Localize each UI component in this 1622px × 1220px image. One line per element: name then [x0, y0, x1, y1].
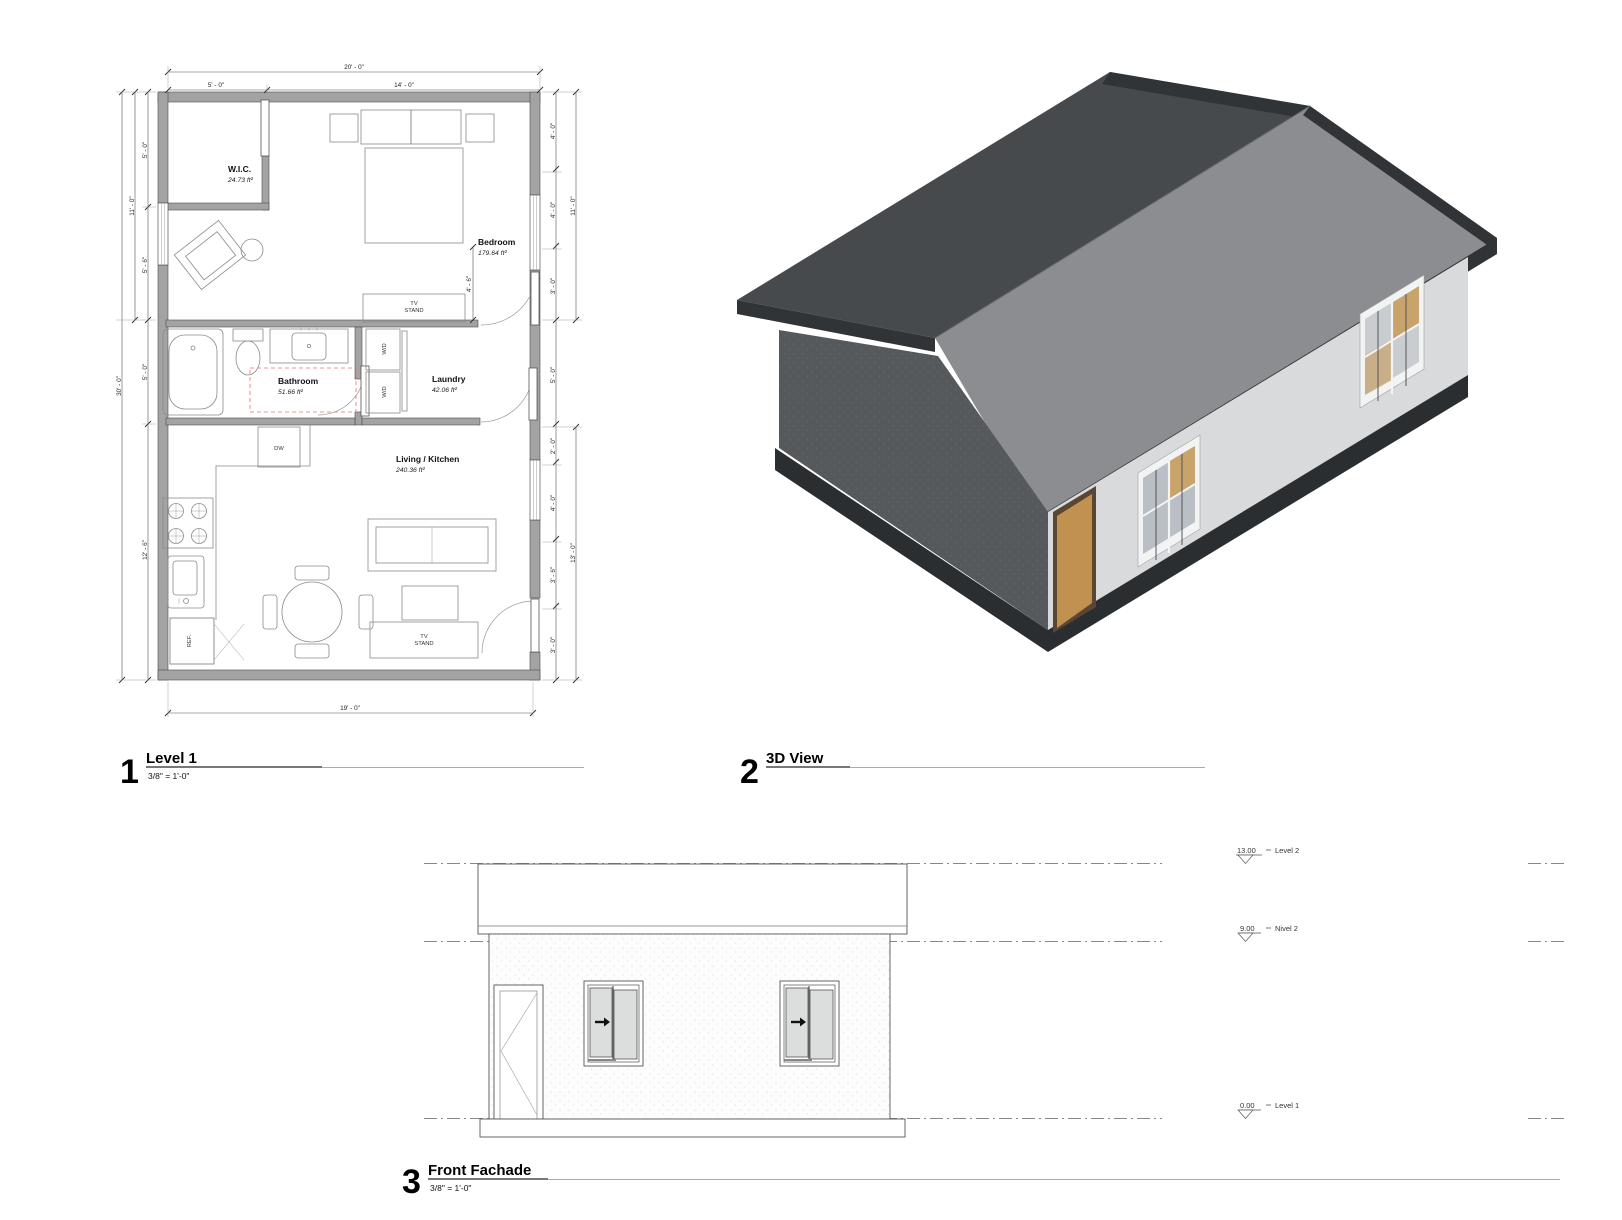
- bedroom-furniture: [174, 110, 494, 322]
- dim-right-seg2: 4' - 0": [550, 202, 557, 218]
- room-area-bathroom: 51.66 ft²: [278, 389, 304, 396]
- bathroom-fixtures: [163, 326, 356, 415]
- entry-door-swing: [482, 601, 534, 653]
- level1-elevation-value: 0.00: [1240, 1101, 1255, 1110]
- facade-roof-band: [478, 864, 907, 934]
- dim-top-left: 5' - 0": [208, 82, 224, 89]
- room-label-bathroom: Bathroom: [278, 376, 319, 386]
- dim-left-seg2: 5' - 6": [142, 257, 149, 273]
- plan-room-labels: W.I.C. 24.73 ft² Bedroom 179.64 ft² Bath…: [227, 164, 516, 647]
- dim-bottom: 19' - 0": [340, 705, 360, 712]
- refrigerator-label: REF.: [187, 634, 193, 647]
- view-title-front-fachade: Front Fachade: [428, 1162, 531, 1179]
- level-marker-level1: 0.00 Level 1: [1238, 1101, 1299, 1119]
- dim-right-seg7: 3' - 6": [550, 567, 557, 583]
- tv-stand-label-1b: STAND: [404, 308, 423, 314]
- dim-left-overall: 30' - 0": [116, 376, 123, 396]
- nivel2-elevation-value: 9.00: [1240, 924, 1255, 933]
- dim-right-seg5: 2' - 0": [550, 438, 557, 454]
- dim-right-seg6: 4' - 0": [550, 495, 557, 511]
- coffee-table: [402, 586, 458, 620]
- level-marker-nivel2: 9.00 Nivel 2: [1238, 924, 1298, 942]
- dim-right-seg1: 4' - 0": [550, 123, 557, 139]
- dim-right-seg4: 5' - 0": [550, 367, 557, 383]
- tv-stand-label-2b: STAND: [414, 641, 433, 647]
- bathroom-vanity: [270, 326, 348, 363]
- wic-door-leaf: [261, 100, 269, 156]
- view-scale-plan: 3/8" = 1'-0": [148, 771, 189, 781]
- room-label-laundry: Laundry: [432, 374, 466, 384]
- level2-name: Level 2: [1275, 846, 1299, 855]
- window-icon: [158, 203, 168, 265]
- dim-top-right: 14' - 0": [394, 82, 414, 89]
- view-title-plan: 1 Level 1 3/8" = 1'-0": [120, 750, 584, 791]
- dining-set: [263, 566, 373, 658]
- floor-plan-view: W/D W/D DW REF.: [116, 64, 582, 717]
- facade-base: [480, 1119, 905, 1137]
- level2-elevation-value: 13.00: [1237, 846, 1256, 855]
- refrigerator: REF.: [170, 618, 244, 664]
- level-marker-icon: [1238, 1110, 1253, 1119]
- dim-right-seg8: 3' - 0": [550, 637, 557, 653]
- dim-top-overall: 20' - 0": [344, 64, 364, 71]
- view-scale-facade: 3/8" = 1'-0": [430, 1183, 471, 1193]
- kitchen-sink: [168, 556, 204, 608]
- facade-window-1: [584, 981, 643, 1066]
- level1-name: Level 1: [1275, 1101, 1299, 1110]
- tv-stand-label-2a: TV: [420, 634, 428, 640]
- room-label-bedroom: Bedroom: [478, 237, 516, 247]
- level-marker-level2: 13.00 Level 2: [1236, 846, 1299, 864]
- dim-left-seg3: 5' - 0": [142, 364, 149, 380]
- view-number-3: 3: [402, 1163, 421, 1201]
- armchair: [174, 220, 245, 289]
- level-marker-icon: [1238, 933, 1253, 942]
- room-area-wic: 24.73 ft²: [227, 177, 254, 184]
- laundry-fixtures: W/D W/D: [366, 329, 407, 413]
- nivel2-name: Nivel 2: [1275, 924, 1298, 933]
- dishwasher-label: DW: [274, 446, 284, 452]
- tv-stand-living: [370, 622, 478, 658]
- dim-right-lower: 13' - 0": [570, 543, 577, 563]
- room-area-bedroom: 179.64 ft²: [478, 250, 507, 257]
- bed: [365, 148, 463, 243]
- kitchen-counter: [216, 425, 310, 620]
- dryer-label: W/D: [382, 386, 388, 397]
- three-d-view: [737, 72, 1497, 652]
- facade-view: 13.00 Level 2 9.00 Nivel 2 0.00 Level 1: [424, 846, 1568, 1137]
- washer-label: W/D: [382, 343, 388, 354]
- dim-right-upper: 11' - 0": [570, 196, 577, 215]
- room-area-living: 240.36 ft²: [395, 467, 425, 474]
- dim-left-seg4: 12' - 6": [142, 540, 149, 560]
- facade-window-2: [780, 981, 839, 1066]
- view-title-facade: 3 Front Fachade 3/8" = 1'-0": [402, 1162, 1560, 1201]
- room-area-laundry: 42.06 ft²: [432, 387, 458, 394]
- facade-door: [494, 985, 543, 1119]
- window-icon: [530, 195, 540, 270]
- tv-stand-label-1a: TV: [410, 301, 418, 307]
- room-label-wic: W.I.C.: [228, 164, 251, 174]
- plan-walls: [158, 92, 540, 680]
- laundry-door-swing: [481, 371, 533, 422]
- dim-bedroom-interior: 4' - 6": [466, 276, 473, 292]
- drawing-sheet: W/D W/D DW REF.: [0, 0, 1622, 1220]
- level-marker-icon: [1238, 855, 1253, 864]
- view-title-3d-view: 3D View: [766, 750, 824, 767]
- view-title-level1: Level 1: [146, 750, 197, 767]
- room-label-living: Living / Kitchen: [396, 454, 459, 464]
- dim-left-upper: 11' - 0": [129, 196, 136, 215]
- view-title-3d: 2 3D View: [740, 750, 1205, 791]
- side-table: [241, 239, 263, 261]
- bedroom-door-swing: [481, 272, 536, 325]
- sofa: [368, 519, 496, 571]
- dim-left-seg1: 5' - 0": [142, 142, 149, 158]
- window-icon: [530, 460, 540, 520]
- sheet-svg: W/D W/D DW REF.: [0, 0, 1622, 1220]
- view-number-1: 1: [120, 753, 139, 791]
- cooktop: [163, 498, 213, 548]
- bathroom-clearance-dashed: [250, 368, 356, 412]
- view-number-2: 2: [740, 753, 759, 791]
- dim-right-seg3: 3' - 0": [550, 278, 557, 294]
